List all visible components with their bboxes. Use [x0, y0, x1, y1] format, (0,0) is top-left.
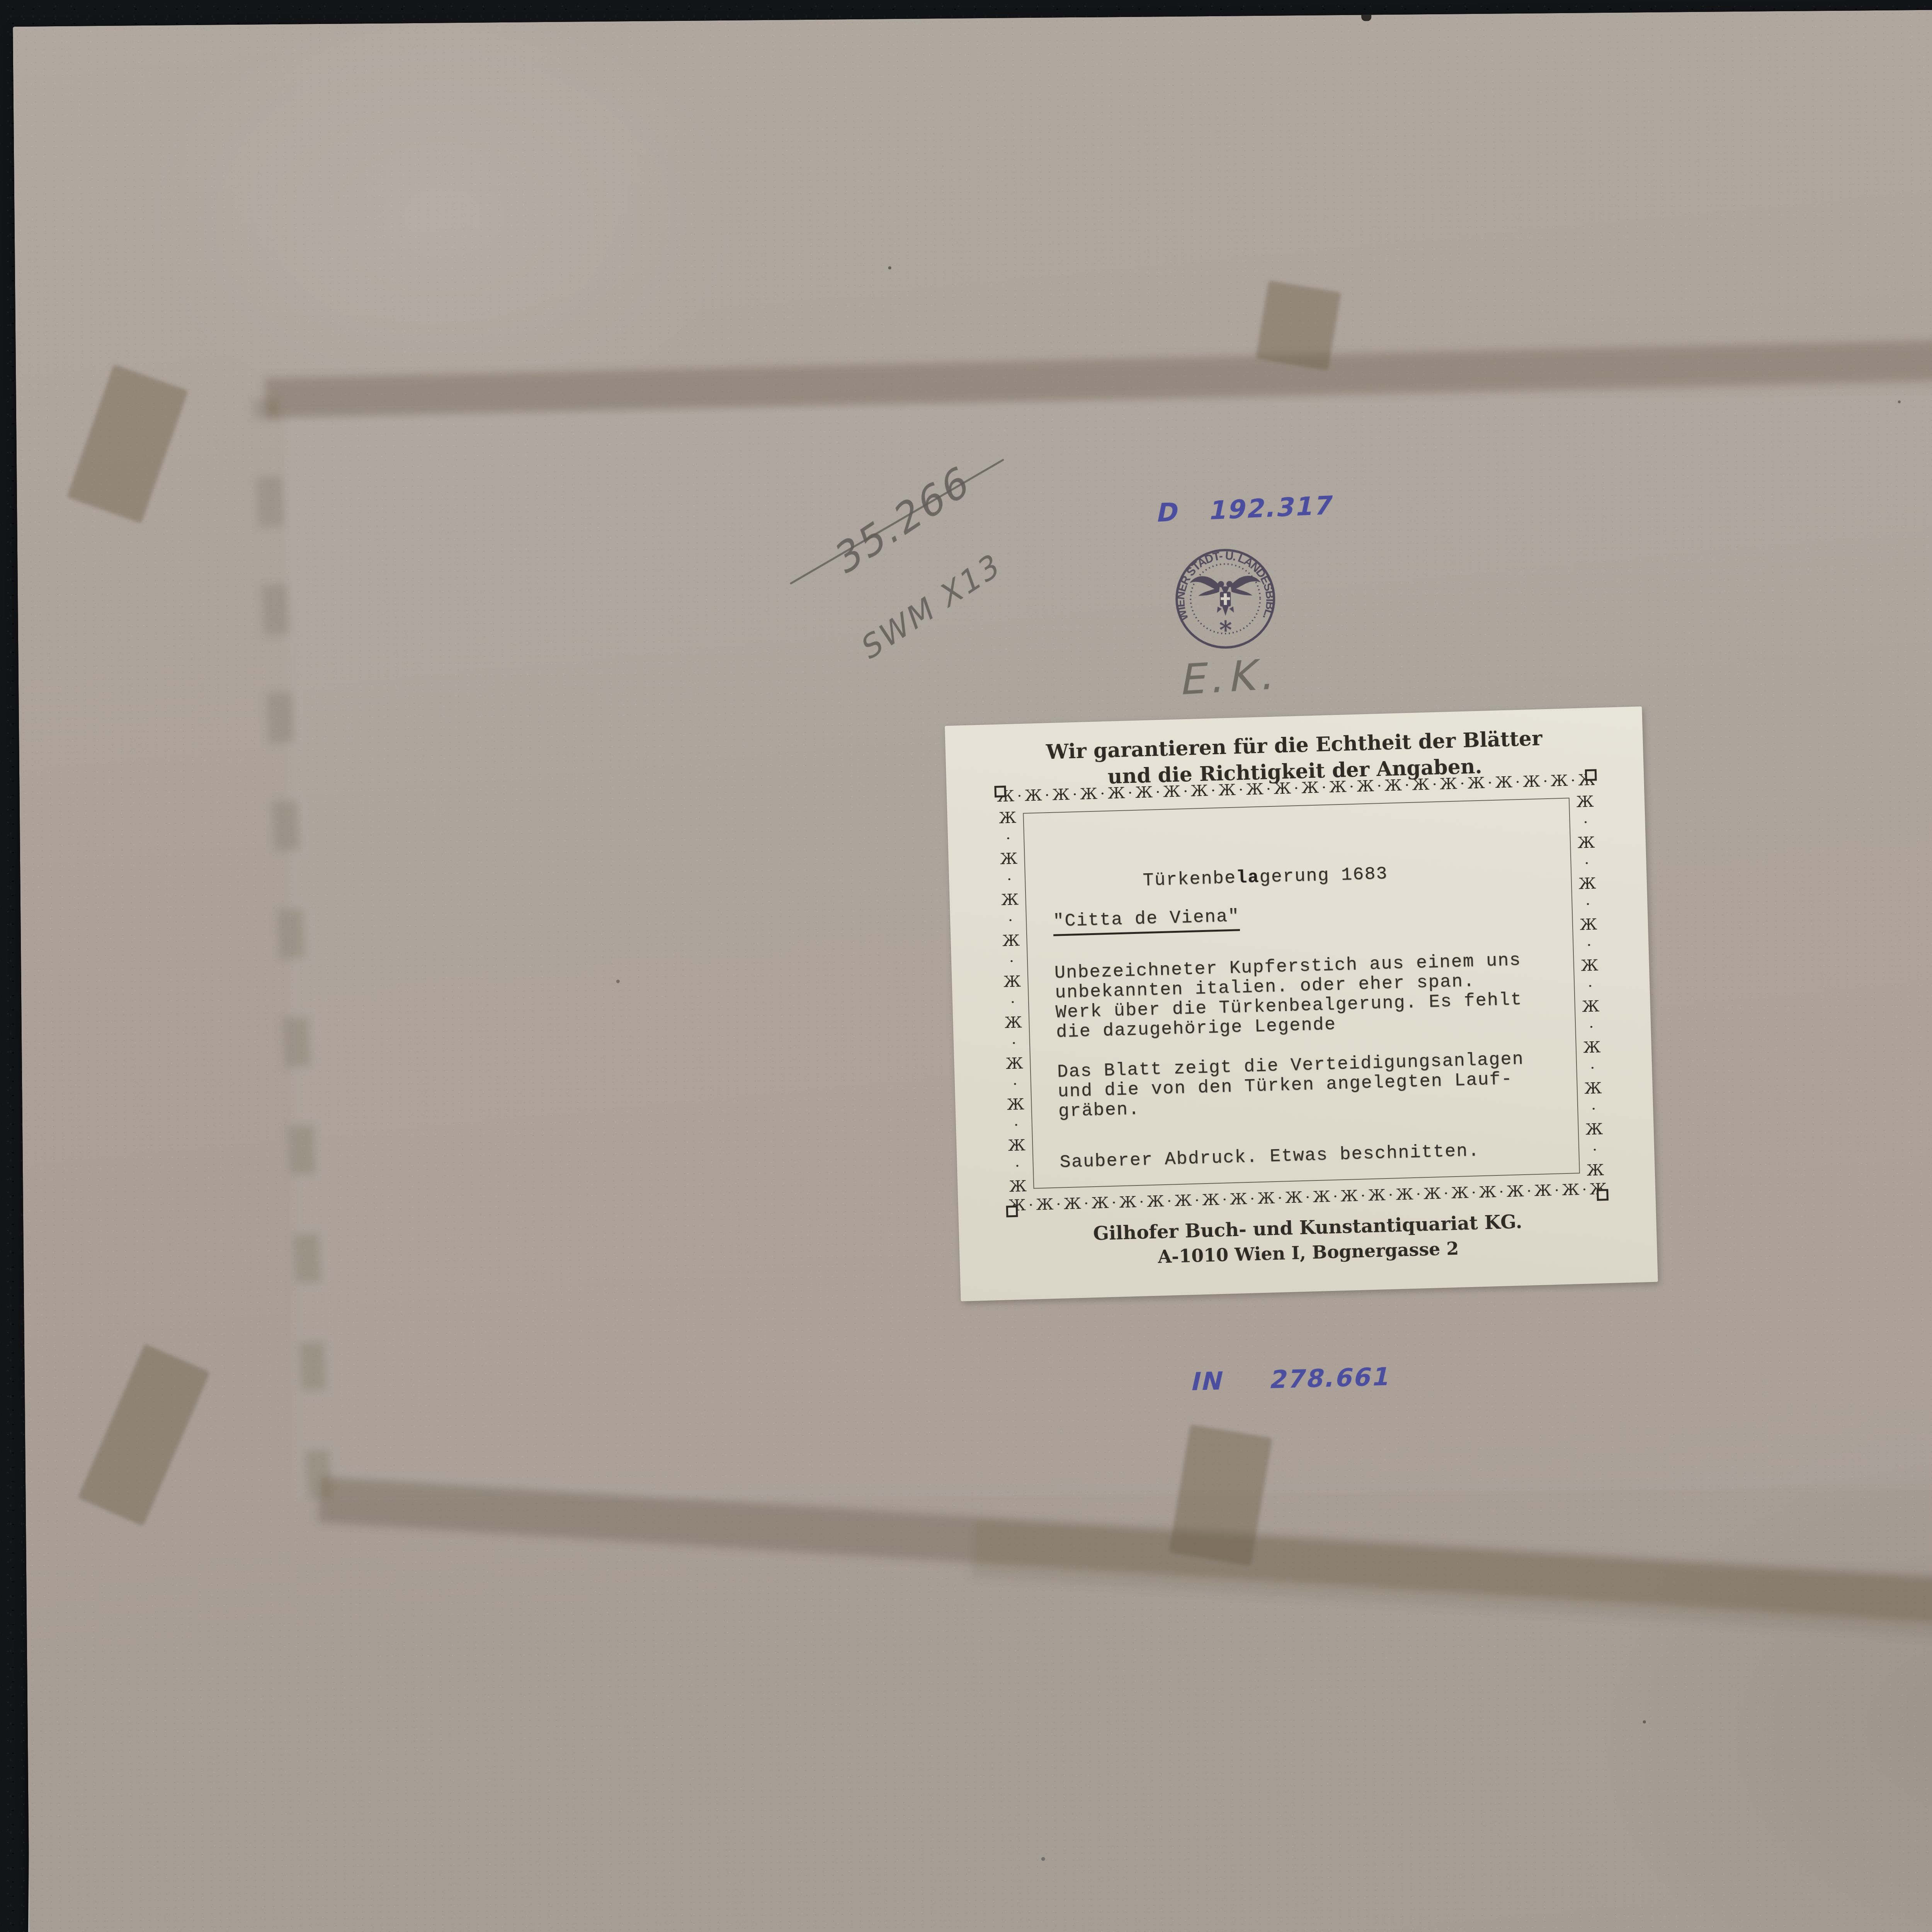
ornament-band-right: Ж·Ж·Ж·Ж·Ж·Ж·Ж·Ж·Ж·Ж·Ж·Ж·Ж·Ж·Ж — [1574, 792, 1606, 1178]
accession-top-number: 192.317 — [1207, 490, 1332, 526]
speck — [616, 980, 620, 983]
ornament-corner — [1597, 1189, 1609, 1201]
tape-top-middle — [1255, 281, 1341, 371]
edge-notch — [1361, 15, 1371, 21]
speck — [1643, 1720, 1646, 1723]
label-paragraph-1: Unbezeichneter Kupferstich aus einem uns… — [1054, 950, 1523, 1042]
dealer-label: Wir garantieren für die Echtheit der Blä… — [945, 706, 1658, 1301]
accession-bottom-prefix: IN — [1189, 1367, 1222, 1396]
speck — [1898, 400, 1901, 403]
accession-number-bottom: IN 278.661 — [1189, 1362, 1389, 1396]
library-round-stamp: WIENER STADT- U. LANDESBIBL. * — [1171, 544, 1280, 653]
librarian-initials: E.K. — [1176, 650, 1278, 704]
ornament-corner — [1006, 1206, 1018, 1218]
label-subtitle: "Citta de Viena" — [1053, 906, 1240, 936]
spacer — [1222, 1388, 1269, 1389]
title-prefix: Türkenbe — [1143, 868, 1236, 891]
title-suffix: gerung 1683 — [1259, 864, 1388, 888]
stamp-star-icon: * — [1219, 615, 1232, 644]
speck — [888, 266, 891, 269]
double-eagle-icon — [1190, 576, 1261, 616]
accession-top-prefix: D — [1155, 497, 1178, 528]
title-overstrike: la — [1236, 867, 1260, 888]
ornament-corner — [994, 786, 1006, 798]
label-title: Türkenbelagerung 1683 — [1072, 844, 1389, 912]
speck — [1041, 1857, 1045, 1861]
cardboard-backing: 35.266 SWM X13 D 192.317 WIENER STADT- U… — [13, 6, 1932, 1932]
ornament-corner — [1585, 769, 1597, 781]
spacer — [1178, 519, 1208, 520]
accession-bottom-number: 278.661 — [1268, 1362, 1389, 1394]
